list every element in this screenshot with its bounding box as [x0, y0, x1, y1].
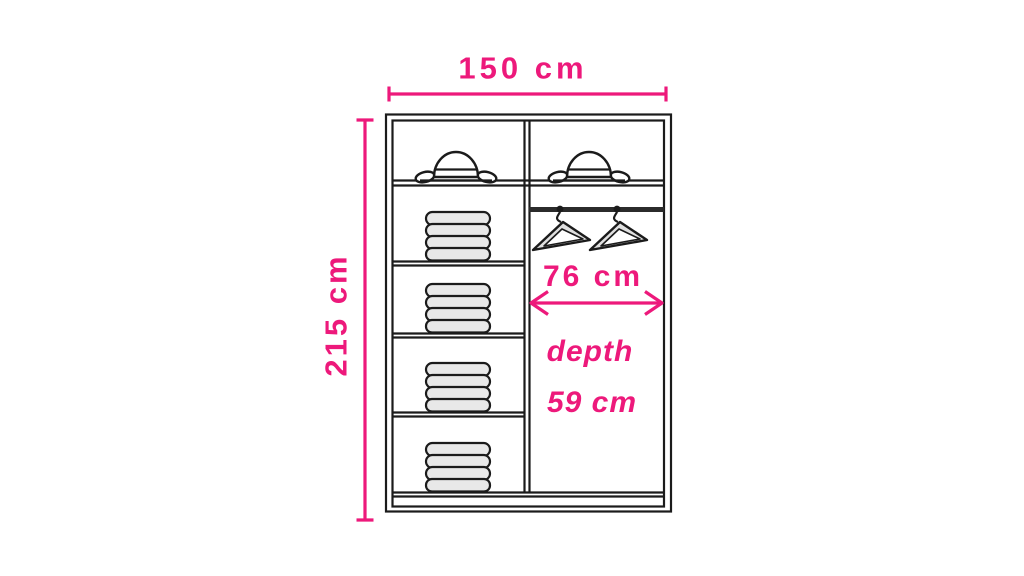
- hanger-icon: [533, 206, 590, 250]
- hat-icon: [548, 152, 631, 184]
- width-label: 150 cm: [458, 53, 587, 84]
- clothes-stack-icon: [426, 212, 490, 261]
- hanging-rail: [529, 207, 664, 212]
- height-label: 215 cm: [321, 253, 352, 376]
- hanger-icon: [590, 206, 647, 250]
- height-dimension-line: [357, 120, 374, 520]
- clothes-stack-icon: [426, 284, 490, 333]
- depth-label: depth: [547, 337, 634, 367]
- clothes-stack-icon: [426, 443, 490, 492]
- width-dimension-line: [389, 87, 666, 102]
- hat-icon: [415, 152, 498, 184]
- hanging-width-label: 76 cm: [543, 262, 643, 292]
- depth-value-label: 59 cm: [547, 388, 637, 418]
- clothes-stack-icon: [426, 363, 490, 412]
- wardrobe-drawing: [0, 0, 1024, 576]
- wardrobe-dimension-diagram: 150 cm 215 cm 76 cm depth 59 cm: [0, 0, 1024, 576]
- hanging-width-arrow: [531, 292, 662, 315]
